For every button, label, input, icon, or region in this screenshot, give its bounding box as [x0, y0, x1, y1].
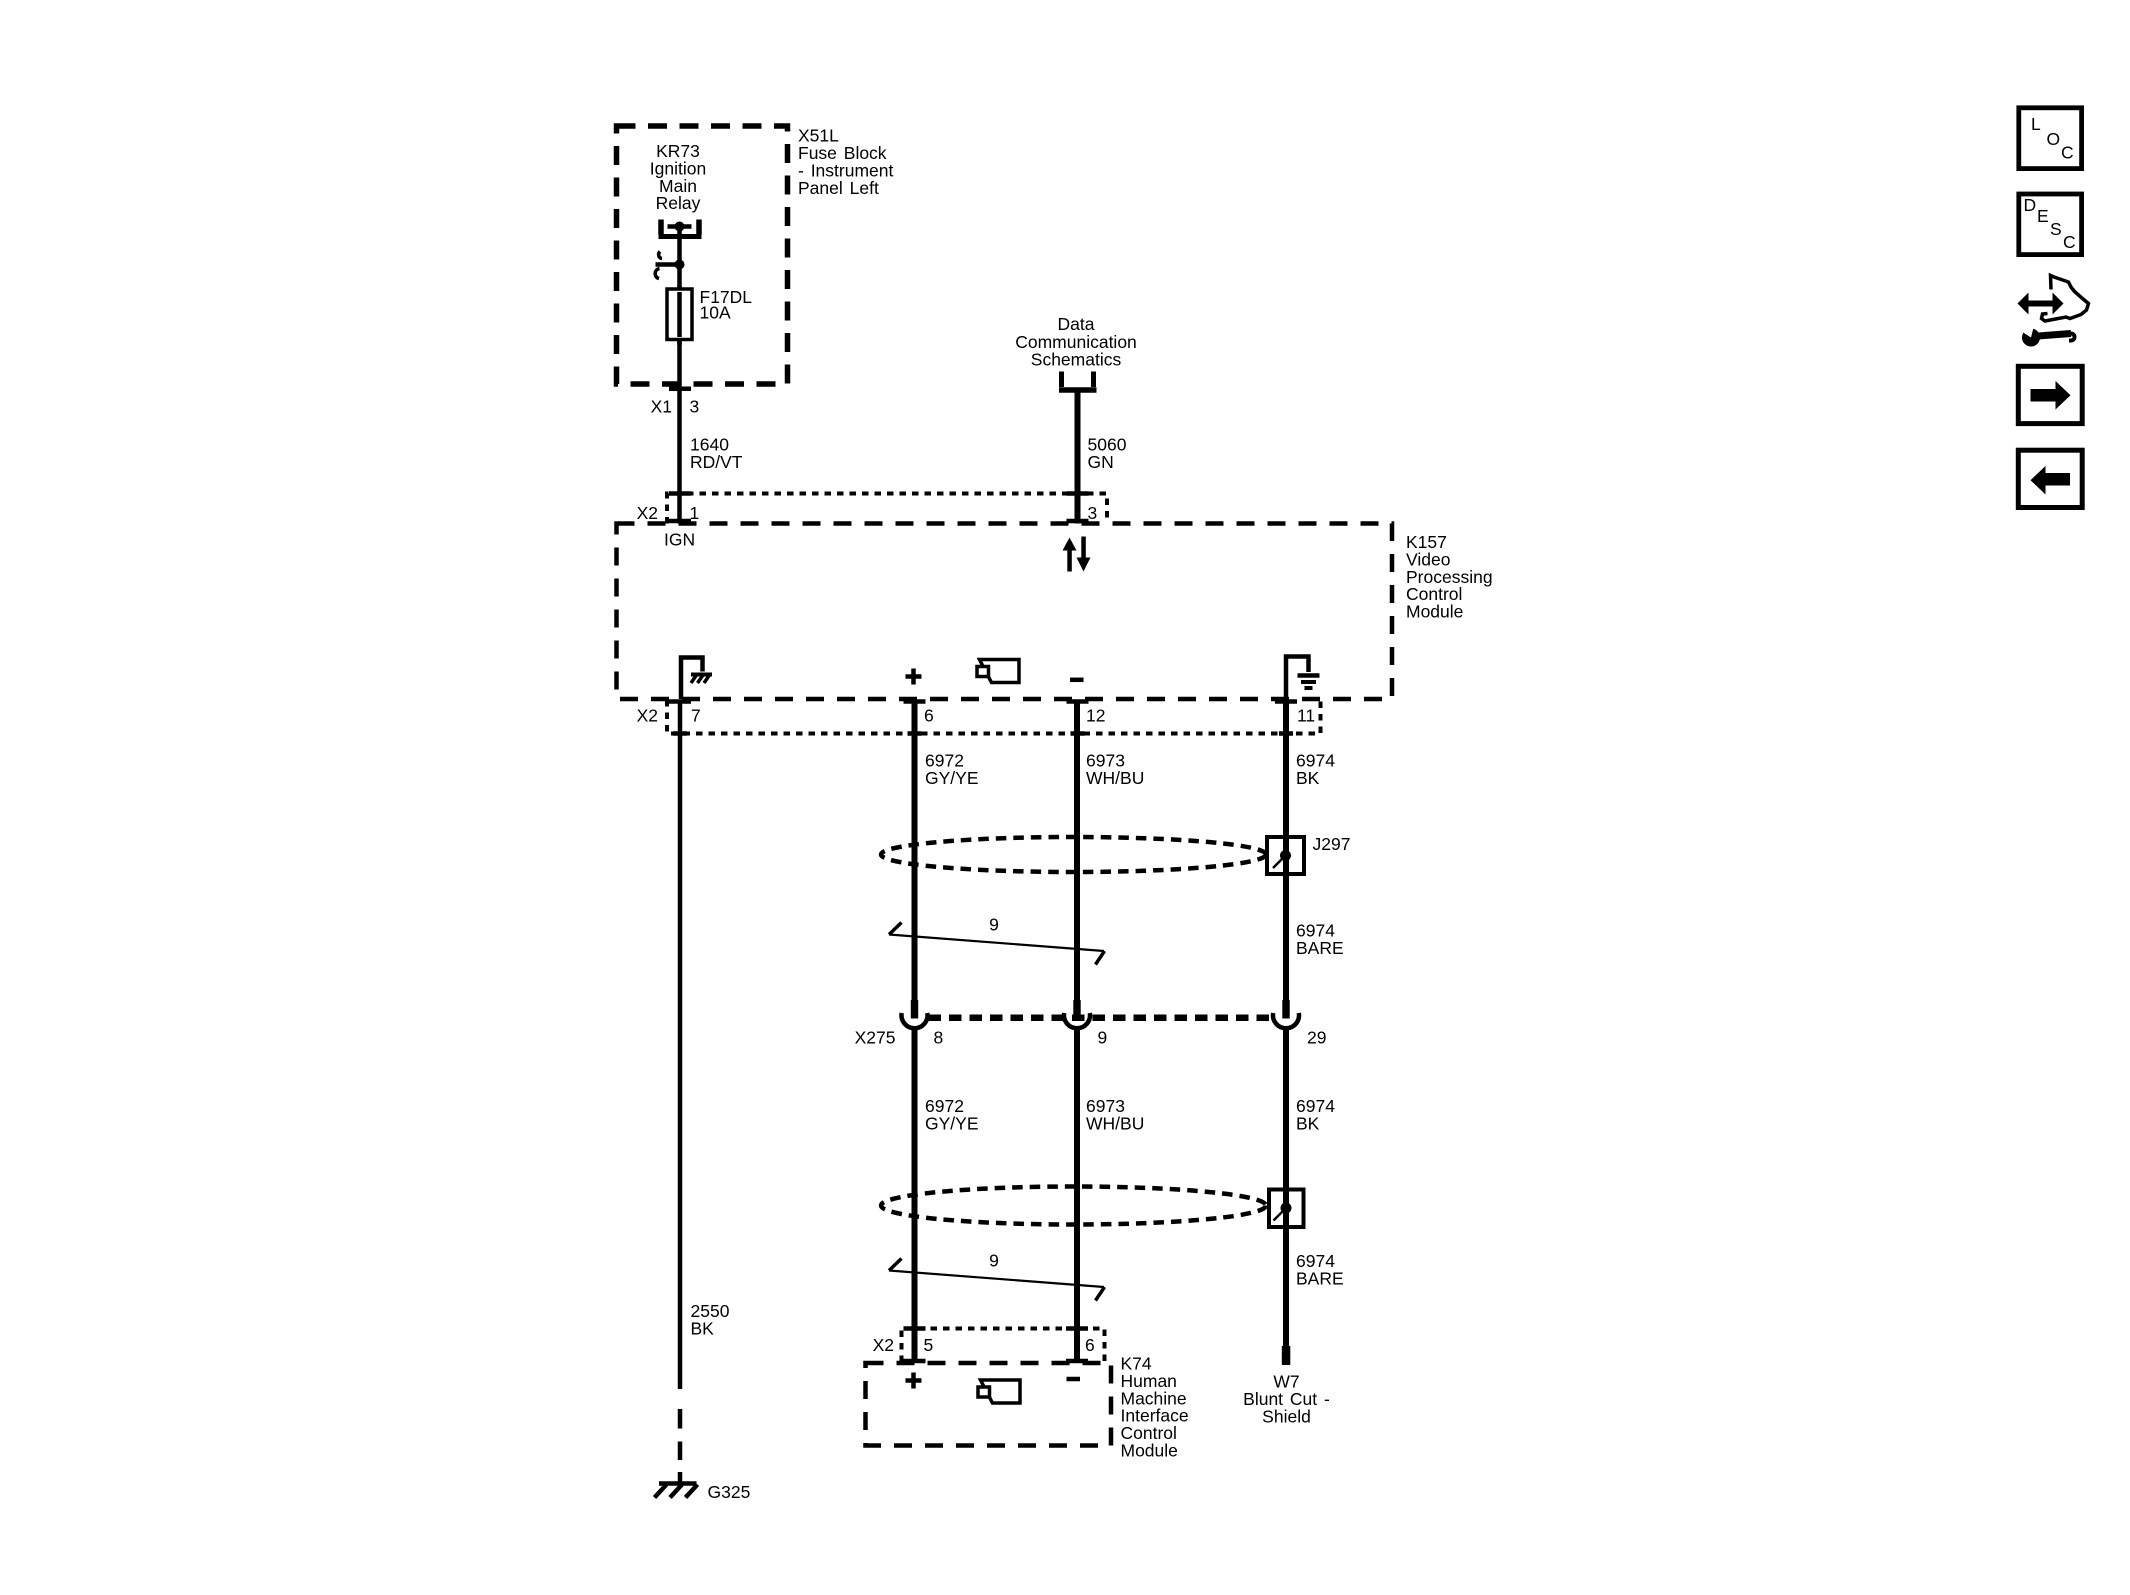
svg-text:O: O — [2047, 129, 2061, 149]
svg-text:7: 7 — [691, 706, 701, 726]
svg-text:12: 12 — [1086, 706, 1105, 726]
svg-text:D: D — [2024, 195, 2037, 215]
svg-text:GY/YE: GY/YE — [925, 1113, 979, 1133]
svg-text:J297: J297 — [1313, 834, 1351, 854]
svg-text:3: 3 — [1088, 503, 1098, 523]
svg-text:E: E — [2037, 206, 2049, 226]
svg-text:9: 9 — [989, 1251, 999, 1271]
svg-text:Module: Module — [1121, 1441, 1178, 1461]
svg-text:Relay: Relay — [656, 193, 701, 213]
svg-text:C: C — [2063, 232, 2076, 252]
svg-text:6: 6 — [1085, 1335, 1095, 1355]
svg-text:11: 11 — [1297, 706, 1315, 726]
svg-text:9: 9 — [989, 915, 999, 935]
svg-text:9: 9 — [1098, 1028, 1108, 1048]
svg-text:Schematics: Schematics — [1031, 350, 1122, 370]
svg-text:L: L — [2031, 114, 2041, 134]
svg-text:Panel Left: Panel Left — [798, 178, 879, 198]
svg-text:3: 3 — [690, 397, 700, 417]
svg-text:Shield: Shield — [1262, 1406, 1311, 1426]
svg-text:GY/YE: GY/YE — [925, 768, 979, 788]
svg-text:X1: X1 — [651, 397, 672, 417]
svg-text:Module: Module — [1406, 602, 1463, 622]
svg-text:BK: BK — [1296, 768, 1320, 788]
svg-text:6: 6 — [924, 706, 934, 726]
svg-text:X2: X2 — [637, 503, 658, 523]
svg-text:X2: X2 — [873, 1335, 894, 1355]
svg-text:IGN: IGN — [664, 530, 695, 550]
svg-text:X2: X2 — [637, 706, 658, 726]
svg-text:X275: X275 — [855, 1028, 896, 1048]
svg-text:Data: Data — [1058, 314, 1095, 334]
svg-text:BARE: BARE — [1296, 938, 1344, 958]
svg-text:BARE: BARE — [1296, 1269, 1344, 1289]
svg-text:G325: G325 — [708, 1482, 751, 1502]
svg-text:C: C — [2061, 143, 2074, 163]
svg-text:BK: BK — [691, 1319, 715, 1339]
svg-text:GN: GN — [1088, 452, 1114, 472]
svg-text:S: S — [2050, 219, 2062, 239]
svg-text:RD/VT: RD/VT — [690, 452, 743, 472]
svg-text:8: 8 — [934, 1028, 944, 1048]
svg-text:BK: BK — [1296, 1113, 1320, 1133]
svg-text:29: 29 — [1307, 1028, 1326, 1048]
svg-text:WH/BU: WH/BU — [1086, 1113, 1144, 1133]
svg-text:WH/BU: WH/BU — [1086, 768, 1144, 788]
svg-text:5: 5 — [924, 1335, 934, 1355]
svg-text:10A: 10A — [700, 303, 731, 323]
